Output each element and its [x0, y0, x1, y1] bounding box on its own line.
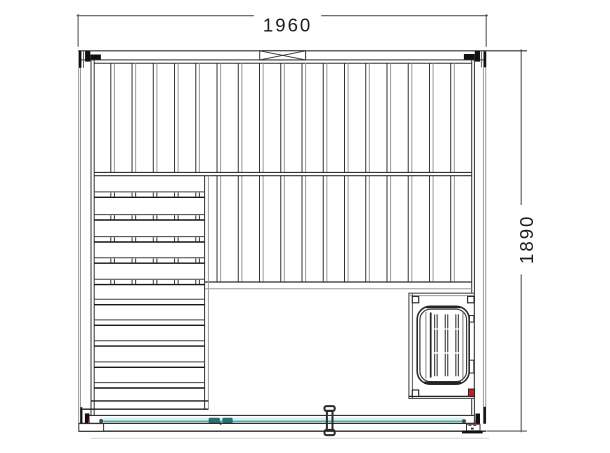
- svg-text:1960: 1960: [263, 15, 312, 36]
- svg-text:1890: 1890: [516, 215, 537, 264]
